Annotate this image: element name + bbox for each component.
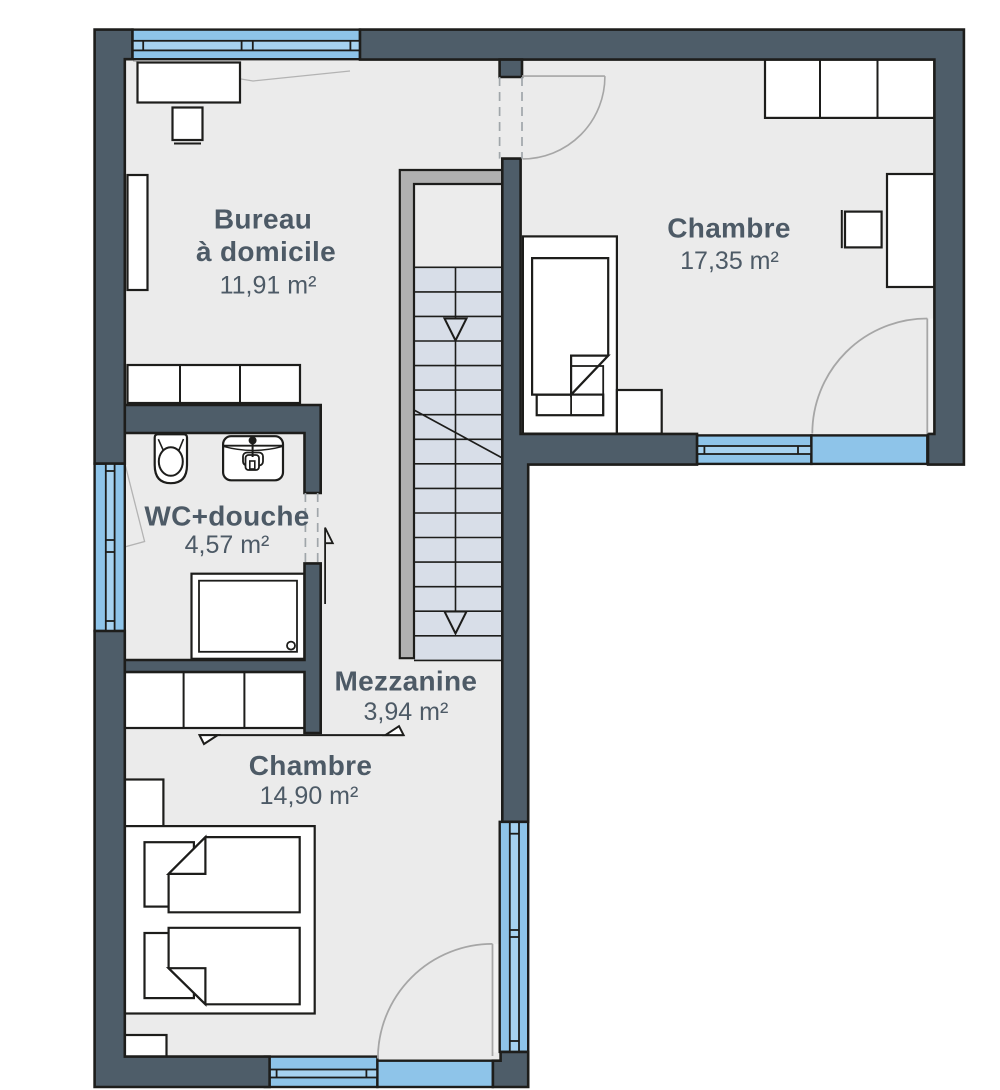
svg-text:3,94 m²: 3,94 m² xyxy=(364,698,449,726)
svg-text:WC+douche: WC+douche xyxy=(144,500,309,531)
svg-text:17,35 m²: 17,35 m² xyxy=(680,247,779,275)
svg-text:Chambre: Chambre xyxy=(249,750,372,781)
svg-text:11,91 m²: 11,91 m² xyxy=(220,272,317,300)
svg-text:14,90 m²: 14,90 m² xyxy=(260,782,359,810)
svg-text:Bureau: Bureau xyxy=(214,204,312,235)
svg-text:4,57 m²: 4,57 m² xyxy=(185,531,270,559)
svg-text:Mezzanine: Mezzanine xyxy=(335,666,478,697)
svg-text:à domicile: à domicile xyxy=(196,236,336,267)
svg-text:Chambre: Chambre xyxy=(667,212,790,243)
